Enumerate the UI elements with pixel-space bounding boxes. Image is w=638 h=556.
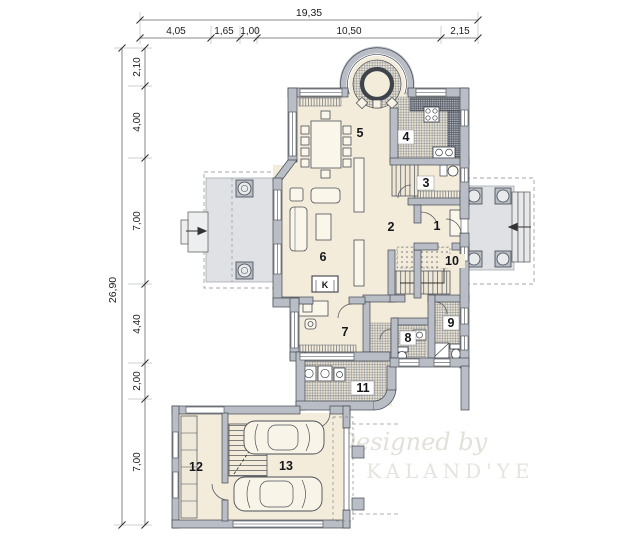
dim-left-total: 26,90: [107, 277, 119, 303]
dim-left-seg-2: 4,00: [132, 112, 143, 132]
window: [289, 112, 296, 156]
dim-top-seg-3: 1,00: [240, 26, 260, 37]
room-label-8: 8: [405, 331, 412, 345]
room-label-4: 4: [403, 130, 410, 144]
dim-left-seg-4: 4,40: [132, 314, 143, 334]
utility-sink-icon: [334, 368, 345, 381]
porch-column: [495, 188, 511, 204]
window: [461, 336, 468, 350]
room-label-1: 1: [434, 219, 441, 233]
cabinet: [354, 240, 364, 286]
window: [274, 244, 281, 274]
tower-round-table: [362, 69, 392, 99]
room-label-3: 3: [423, 176, 430, 190]
basement-stairs: [392, 163, 418, 196]
car: [234, 477, 322, 511]
fireplace-label: K: [322, 280, 329, 290]
terrace-column: [236, 262, 253, 279]
entry-door-slot: [461, 219, 468, 233]
dim-top-total: 19,35: [296, 7, 322, 19]
canopy-post: [352, 498, 364, 510]
floor-plan-page: 19,35 4,05 1,65 1,00 10,50 2,15 26,90 2,…: [0, 0, 638, 556]
floor-plan-svg: 19,35 4,05 1,65 1,00 10,50 2,15 26,90 2,…: [0, 0, 638, 556]
window: [434, 359, 450, 366]
room-label-12: 12: [189, 460, 203, 474]
sofa: [290, 207, 307, 251]
dim-left-seg-6: 7,00: [132, 452, 143, 472]
dim-left-seg-5: 2,00: [132, 371, 143, 391]
canopy-post: [352, 446, 364, 458]
fireplace: K: [312, 276, 338, 292]
room-label-6: 6: [320, 250, 327, 264]
dim-top-seg-5: 2,15: [450, 26, 470, 37]
garage-door: [344, 428, 349, 510]
window: [300, 353, 354, 360]
room-label-5: 5: [357, 126, 364, 140]
stove-icon: [424, 107, 439, 122]
shower-icon: [433, 343, 449, 358]
room-label-2: 2: [388, 220, 395, 234]
dim-top-seg-1: 4,05: [166, 26, 186, 37]
cabinet: [354, 158, 364, 212]
tower-center-stand: [373, 100, 381, 108]
sofa-small: [311, 188, 340, 203]
terrace-column: [236, 180, 253, 197]
dim-top-seg-2: 1,65: [214, 26, 234, 37]
coffee-table: [316, 214, 331, 240]
dim-left-seg-1: 2,10: [132, 57, 143, 77]
window: [274, 190, 281, 220]
porch-column: [495, 251, 511, 267]
window: [300, 89, 342, 96]
desk-chair: [305, 319, 316, 329]
window: [416, 89, 446, 96]
car: [244, 421, 324, 454]
room-label-10: 10: [445, 254, 459, 268]
dim-top-seg-4: 10,50: [336, 26, 361, 37]
washer-icon: [318, 366, 332, 381]
window: [461, 168, 468, 182]
window-seat: [299, 98, 341, 106]
room-label-7: 7: [342, 325, 349, 339]
window: [399, 359, 419, 366]
dim-left-seg-3: 7,00: [132, 211, 143, 231]
armchair: [290, 188, 303, 201]
double-sink-icon: [433, 147, 455, 158]
room-label-13: 13: [279, 459, 293, 473]
room-label-11: 11: [356, 381, 369, 395]
window: [461, 308, 468, 324]
room-label-9: 9: [448, 316, 455, 330]
window: [461, 110, 468, 126]
window: [291, 312, 298, 348]
